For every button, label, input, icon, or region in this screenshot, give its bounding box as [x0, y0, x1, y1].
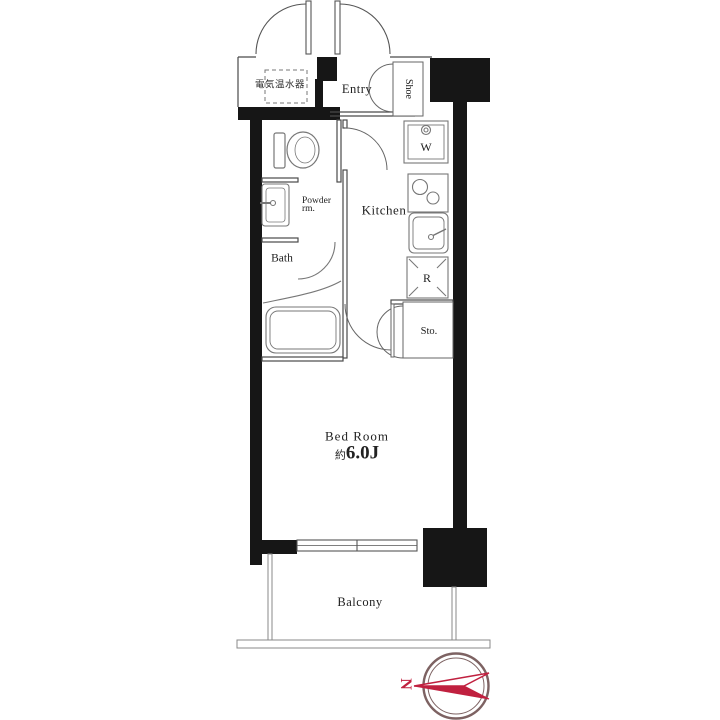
storage-door-arc-bottom [377, 332, 403, 358]
balcony-wall-left [268, 554, 272, 640]
wall-left [250, 107, 262, 565]
water-heater-label: 電気温水器 [255, 81, 305, 91]
wall-bottom-left [250, 540, 297, 554]
stove-box [408, 174, 448, 212]
sink-faucet-knob [429, 235, 434, 240]
balcony-slab [237, 640, 490, 648]
wall-toilet-south [262, 178, 298, 182]
entry-door-leaf-right [335, 1, 340, 54]
entry-door-leaf-left [306, 1, 311, 54]
stove-burner-large [413, 180, 428, 195]
storage-door-arc-top [377, 306, 403, 332]
wall-bath-bedroom [262, 357, 343, 361]
bedroom-window [297, 540, 417, 551]
wall-entry-connector [315, 79, 323, 109]
wall-right [453, 100, 467, 530]
washbasin-faucet-knob [271, 201, 276, 206]
entry-door-arc-right [340, 4, 390, 54]
pillar-top-right [430, 58, 490, 102]
compass-north-label: N [397, 678, 413, 690]
bedroom-door-arc [345, 304, 391, 350]
compass [414, 654, 489, 719]
bedroom-size-value: 6.0J [346, 443, 379, 464]
toilet-tank [274, 133, 285, 168]
balcony-wall-right [452, 587, 456, 640]
bedroom-size-label: 約6.0J [335, 444, 379, 463]
floorplan-canvas: 電気温水器 Entry Shoe W Kitchen Powder rm. Ba… [0, 0, 720, 720]
toilet-icon [274, 132, 319, 168]
wall-toilet-east [337, 120, 341, 182]
powder-room-label-line2: rm. [302, 204, 315, 214]
washbasin-inner [266, 188, 285, 222]
wall-kitchen-west-lower [343, 170, 347, 358]
shoe-cabinet [369, 62, 423, 116]
refrigerator-label: R [423, 272, 431, 284]
stove-burner-small [427, 192, 439, 204]
toilet-seat [295, 137, 315, 163]
shoe-cabinet-label: Shoe [403, 79, 413, 99]
bathtub-inner [270, 311, 336, 349]
washing-machine-label: W [420, 141, 431, 153]
storage-label: Sto. [421, 327, 438, 338]
washer-faucet-center [424, 128, 428, 132]
kitchen-label: Kitchen [362, 204, 407, 217]
washbasin [260, 184, 289, 226]
bedroom-door-leaf [391, 304, 394, 357]
powder-door-arc [345, 128, 387, 170]
entry-doors [256, 1, 390, 54]
pillar-bottom-right [423, 528, 487, 587]
bath-door-arc [298, 242, 335, 279]
wall-powder-south [262, 238, 298, 242]
wall-kitchen-west-upper [343, 120, 347, 128]
wall-top-strip [238, 107, 340, 120]
shoe-door-arc-bottom [369, 88, 393, 112]
bedroom-label: Bed Room [325, 430, 389, 443]
floorplan-drawing [0, 0, 720, 720]
bath-counter-curve [263, 281, 341, 303]
powder-room-label: Powder rm. [302, 197, 331, 213]
balcony-label: Balcony [337, 596, 382, 609]
bath-label: Bath [271, 253, 293, 265]
shoe-door-arc-top [369, 64, 393, 88]
entry-label: Entry [342, 83, 372, 96]
entry-door-arc-left [256, 4, 306, 54]
wall-entry-mullion [317, 57, 337, 81]
bedroom-size-prefix: 約 [335, 450, 346, 462]
